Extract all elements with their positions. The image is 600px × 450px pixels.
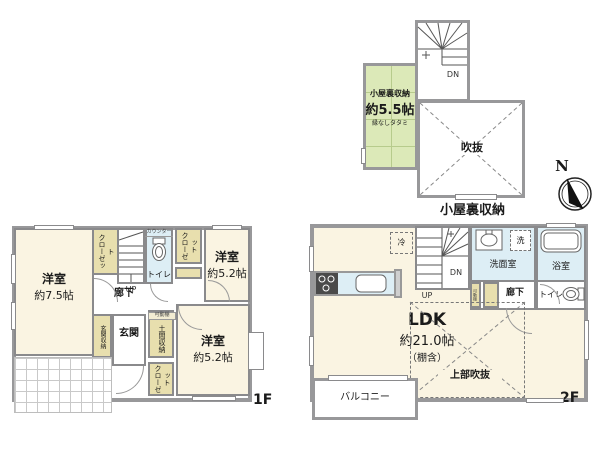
f1-stair-icon [119, 230, 143, 282]
f2-hall-label: 廊下 [498, 288, 532, 299]
f2-window-top [546, 223, 576, 228]
f1-window-top-2 [212, 225, 242, 230]
f1-room-main-name: 洋室 [14, 270, 94, 287]
f1-closet-bottom-label: クローゼット [153, 365, 171, 393]
f1-window-top-1 [34, 225, 74, 230]
f1-counter-label: カウンター [145, 230, 173, 237]
f1-room-br-name: 洋室 [182, 332, 244, 349]
f2-stove-icon [316, 273, 338, 294]
attic-void-label: 吹抜 [444, 142, 500, 155]
attic-window-bottom [455, 194, 497, 200]
f2-floor-label: 2F [560, 390, 592, 407]
f2-balcony-sliding-door [328, 375, 408, 381]
f1-closet-top-label: クローゼット [97, 233, 115, 269]
f2-upper-void-x [410, 302, 525, 398]
f2-balcony-label: バルコニー [312, 392, 418, 404]
f2-laundry-label: 洗 [510, 236, 531, 245]
f1-window-left-2 [11, 302, 16, 330]
f1-floor-label: 1F [253, 392, 283, 409]
f1-movable-shelf-label: 可動棚 [148, 312, 176, 320]
f1-window-left-1 [11, 254, 16, 284]
first-floor-plan: 洋室 約7.5帖 クローゼット UP カウンター トイレ [12, 226, 252, 402]
f1-window-bottom [192, 396, 236, 401]
attic-caption: 小屋裏収納 [415, 203, 530, 218]
f2-toilet-icon [562, 285, 584, 303]
floorplan-canvas: DN 小屋裏収納 約5.5帖 縁なしタタミ 吹抜 小屋裏収納 N [0, 0, 600, 450]
attic-plan: DN 小屋裏収納 約5.5帖 縁なしタタミ 吹抜 小屋裏収納 [360, 18, 528, 218]
f1-entrance-hall [112, 314, 146, 366]
f2-window-right [584, 320, 589, 360]
f1-room-main-size: 約7.5帖 [14, 287, 94, 303]
f1-entrance-label: 玄関 [112, 328, 146, 340]
f1-bay-window [248, 332, 264, 370]
f2-sink-icon [356, 275, 386, 292]
attic-storage-note: 縁なしタタミ [357, 118, 423, 127]
f1-toilet-label: トイレ [145, 270, 173, 279]
f1-room-tr-size: 約5.2帖 [196, 265, 258, 281]
f2-counter-end [394, 269, 402, 298]
attic-storage-label: 小屋裏収納 約5.5帖 縁なしタタミ [357, 88, 423, 127]
f1-room-tr-name: 洋室 [196, 248, 258, 265]
second-floor-plan: 冷 DN UP 洗 洗面室 [310, 224, 588, 402]
attic-storage-size: 約5.5帖 [357, 99, 423, 118]
attic-window-left [361, 148, 366, 164]
f1-room-br-label: 洋室 約5.2帖 [182, 332, 244, 365]
f2-up-label: UP [414, 291, 440, 300]
f2-window-left-2 [309, 336, 314, 366]
f1-entrance-storage-label: 玄関収納 [98, 318, 106, 356]
f2-dn-label: DN [445, 268, 467, 277]
f1-room-br-size: 約5.2帖 [182, 349, 244, 365]
f1-porch [14, 357, 112, 413]
f2-washroom-label: 洗面室 [470, 260, 536, 271]
attic-stair-icon [418, 23, 467, 65]
compass-icon [554, 172, 596, 216]
f2-fridge-label: 冷 [390, 238, 413, 247]
f2-stair-icon [417, 228, 468, 288]
compass: N [546, 158, 600, 218]
attic-dn-label: DN [440, 70, 466, 79]
f2-window-left-1 [309, 246, 314, 272]
f1-room-main-label: 洋室 約7.5帖 [14, 270, 94, 303]
f2-washbasin-icon [476, 230, 502, 250]
f2-window-bottom [526, 398, 564, 403]
f2-upper-void-label: 上部吹抜 [438, 370, 502, 382]
f1-room-tr-label: 洋室 約5.2帖 [196, 248, 258, 281]
f2-bath-label: 浴室 [536, 262, 586, 273]
f1-toilet-icon [151, 238, 167, 262]
attic-storage-name: 小屋裏収納 [357, 88, 423, 99]
f1-doma-storage-label: 土間収納 [157, 322, 166, 356]
f2-bathtub-icon [541, 230, 581, 252]
